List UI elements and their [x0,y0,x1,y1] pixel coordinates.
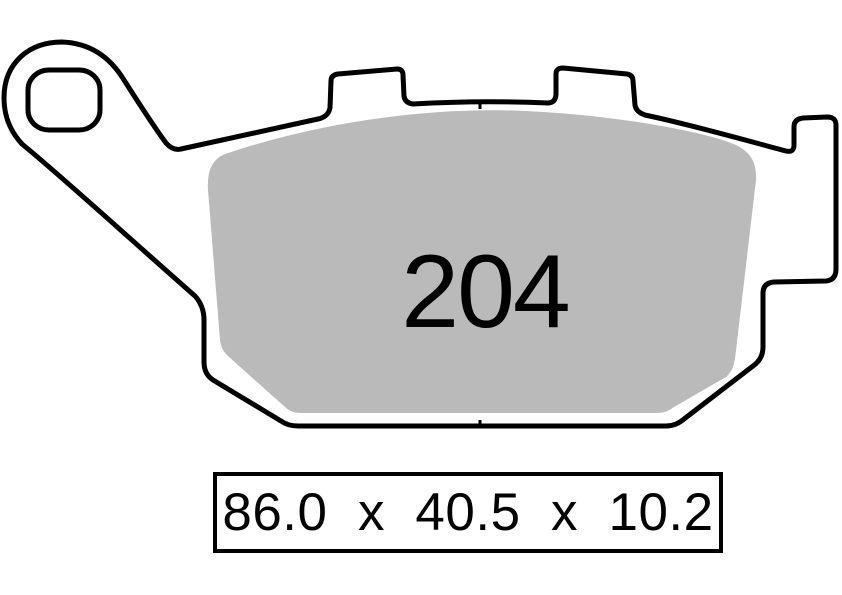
brake-pad-catalog-figure: 204 86.0 x 40.5 x 10.2 [0,0,842,595]
dimensions-box: 86.0 x 40.5 x 10.2 [213,472,723,553]
mounting-hole [28,70,100,130]
dimensions-text: 86.0 x 40.5 x 10.2 [222,486,713,539]
compound-number-label: 204 [365,240,605,344]
